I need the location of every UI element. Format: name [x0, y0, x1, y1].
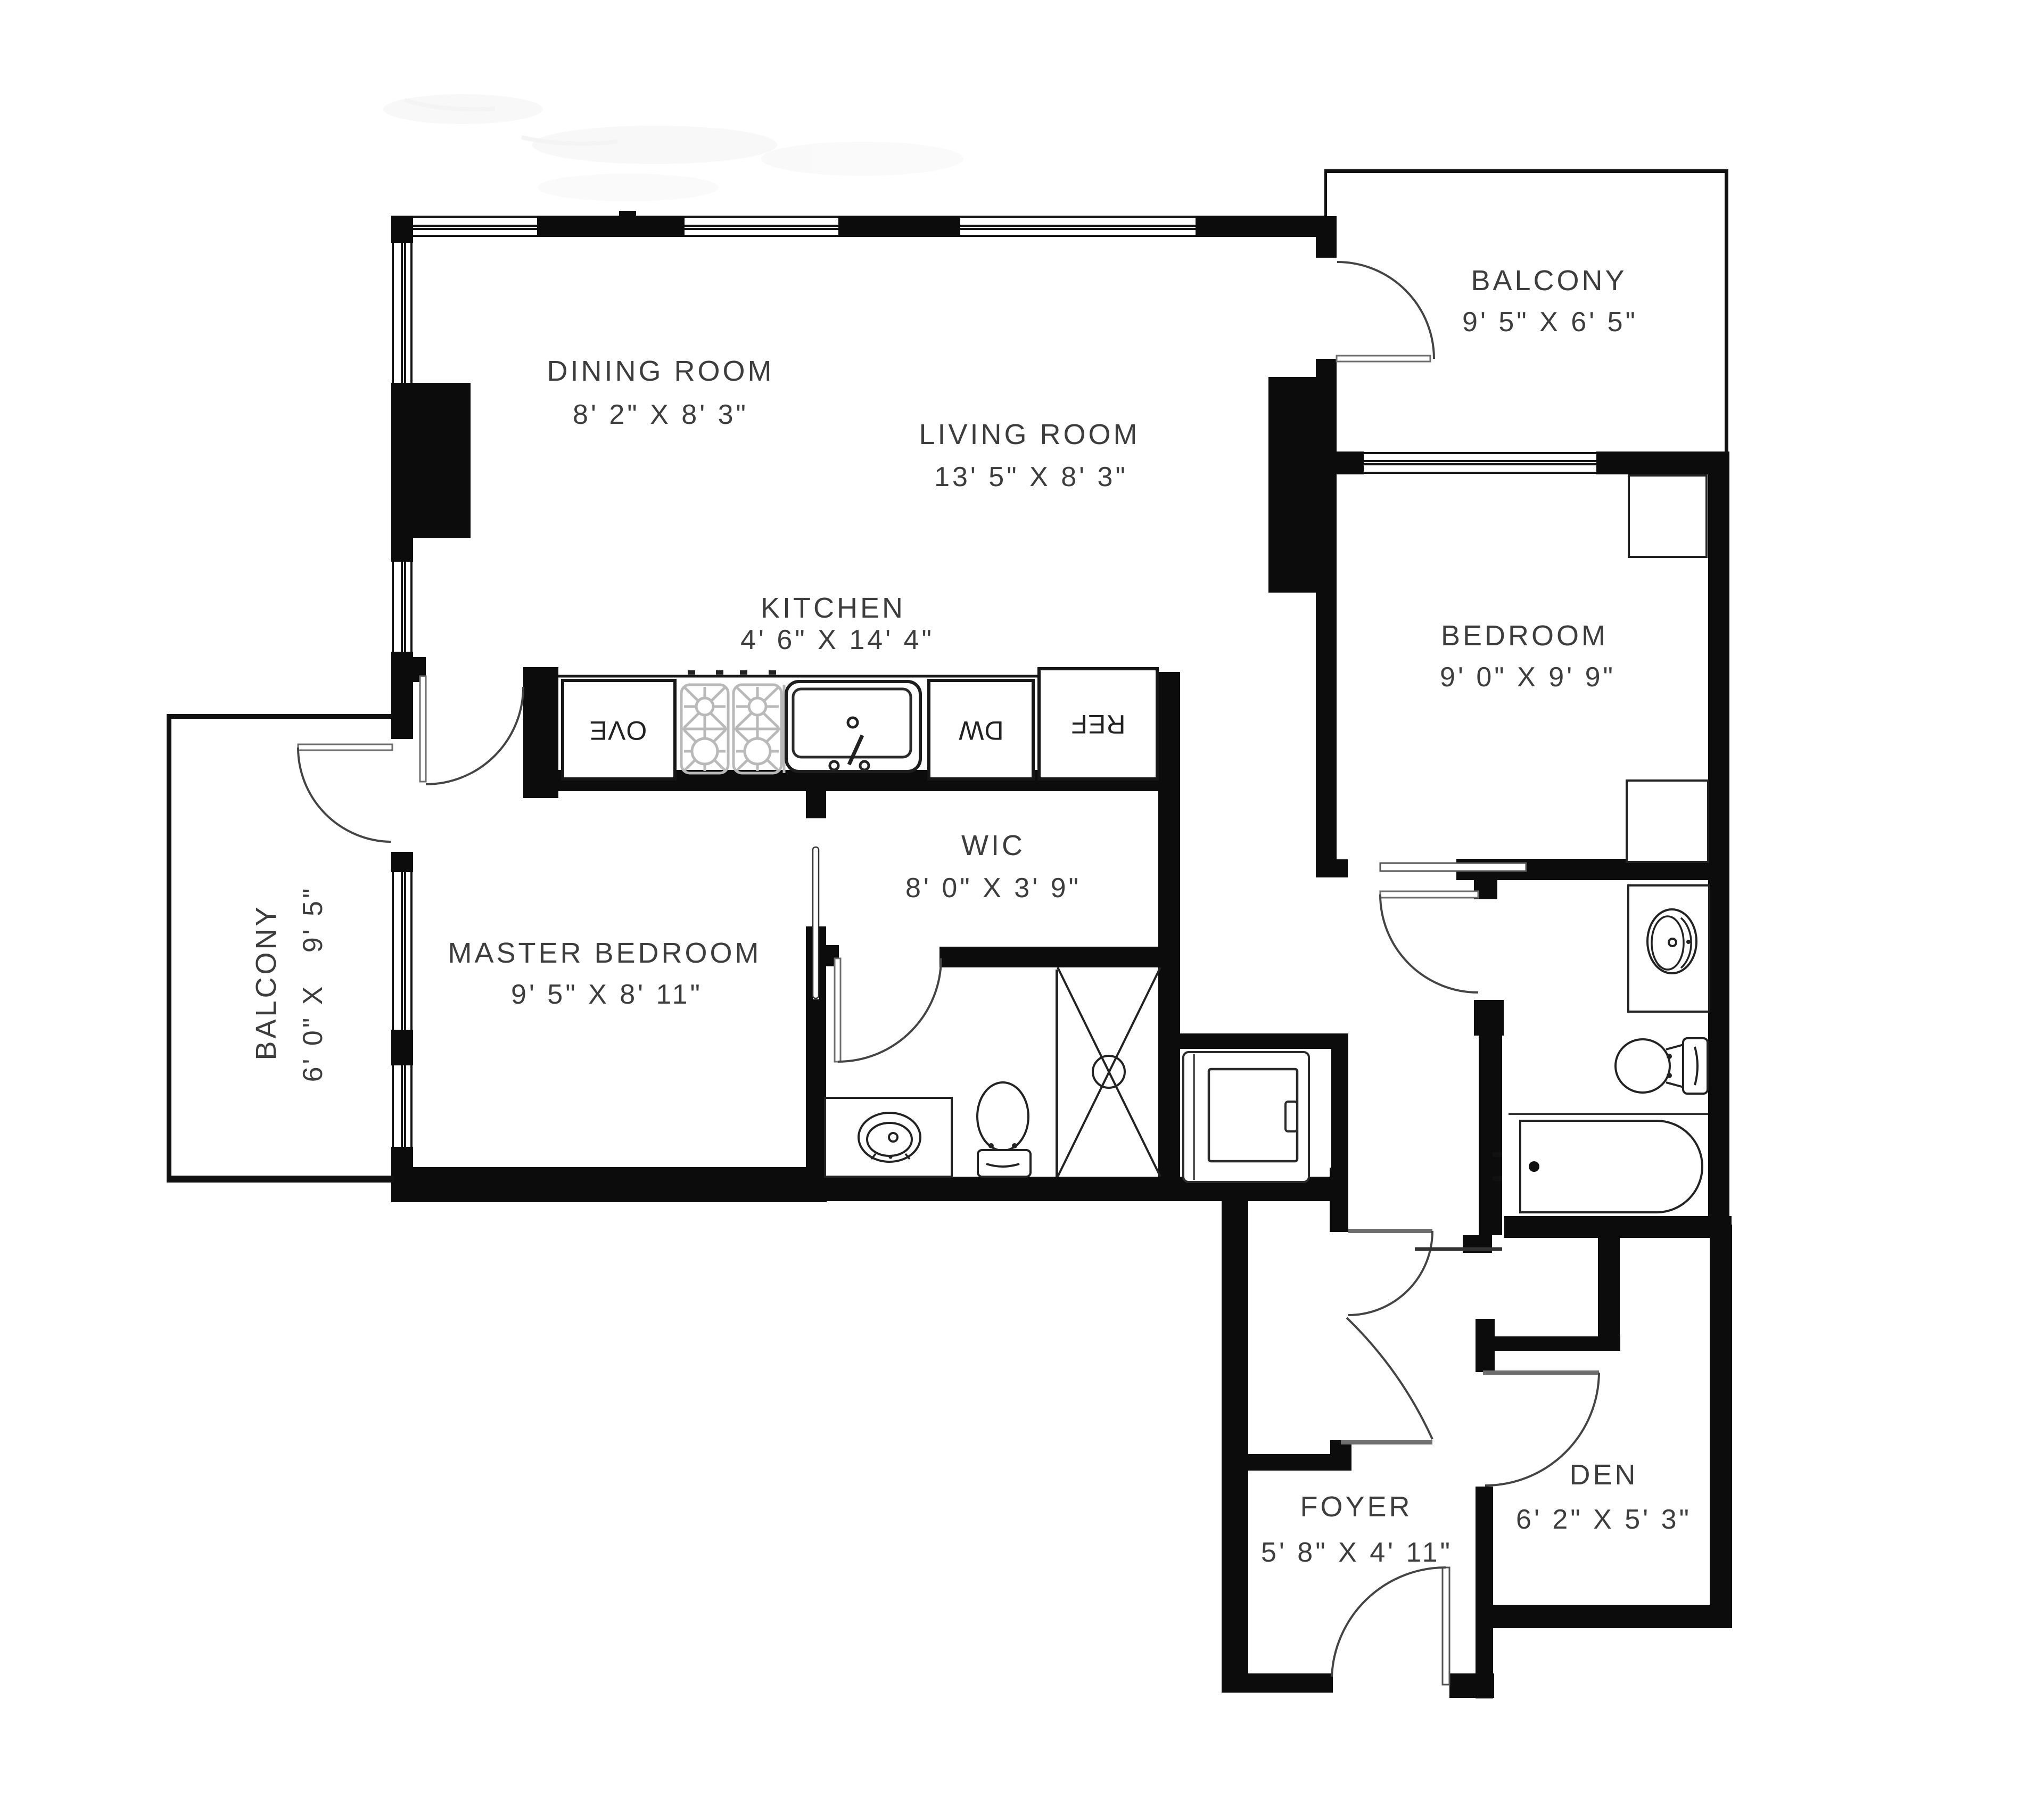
svg-text:9' 5" X 8' 11": 9' 5" X 8' 11"	[511, 979, 703, 1010]
svg-text:8' 2" X 8' 3": 8' 2" X 8' 3"	[573, 399, 748, 430]
svg-text:OVE: OVE	[589, 716, 647, 745]
svg-text:BALCONY: BALCONY	[250, 904, 282, 1060]
svg-text:DEN: DEN	[1569, 1459, 1638, 1491]
svg-text:13' 5" X 8' 3": 13' 5" X 8' 3"	[934, 462, 1128, 492]
svg-text:5' 8" X 4' 11": 5' 8" X 4' 11"	[1261, 1537, 1453, 1568]
svg-text:DW: DW	[958, 716, 1003, 745]
svg-text:4' 6" X 14' 4": 4' 6" X 14' 4"	[740, 625, 934, 655]
svg-text:9' 5" X 6' 5": 9' 5" X 6' 5"	[1462, 307, 1638, 338]
svg-text:KITCHEN: KITCHEN	[761, 592, 905, 624]
svg-text:9' 0" X 9' 9": 9' 0" X 9' 9"	[1440, 662, 1616, 693]
svg-text:FOYER: FOYER	[1300, 1491, 1412, 1523]
svg-text:MASTER BEDROOM: MASTER BEDROOM	[448, 937, 761, 969]
svg-text:WIC: WIC	[961, 830, 1025, 861]
svg-text:8' 0" X 3' 9": 8' 0" X 3' 9"	[905, 873, 1081, 904]
svg-text:BEDROOM: BEDROOM	[1441, 620, 1608, 652]
svg-text:DINING ROOM: DINING ROOM	[547, 355, 774, 387]
svg-text:REF: REF	[1071, 709, 1126, 739]
svg-text:6' 0" X 9' 5": 6' 0" X 9' 5"	[298, 886, 328, 1082]
svg-text:BALCONY: BALCONY	[1471, 265, 1627, 297]
svg-text:LIVING ROOM: LIVING ROOM	[919, 418, 1140, 450]
svg-text:6' 2" X 5' 3": 6' 2" X 5' 3"	[1516, 1504, 1692, 1535]
